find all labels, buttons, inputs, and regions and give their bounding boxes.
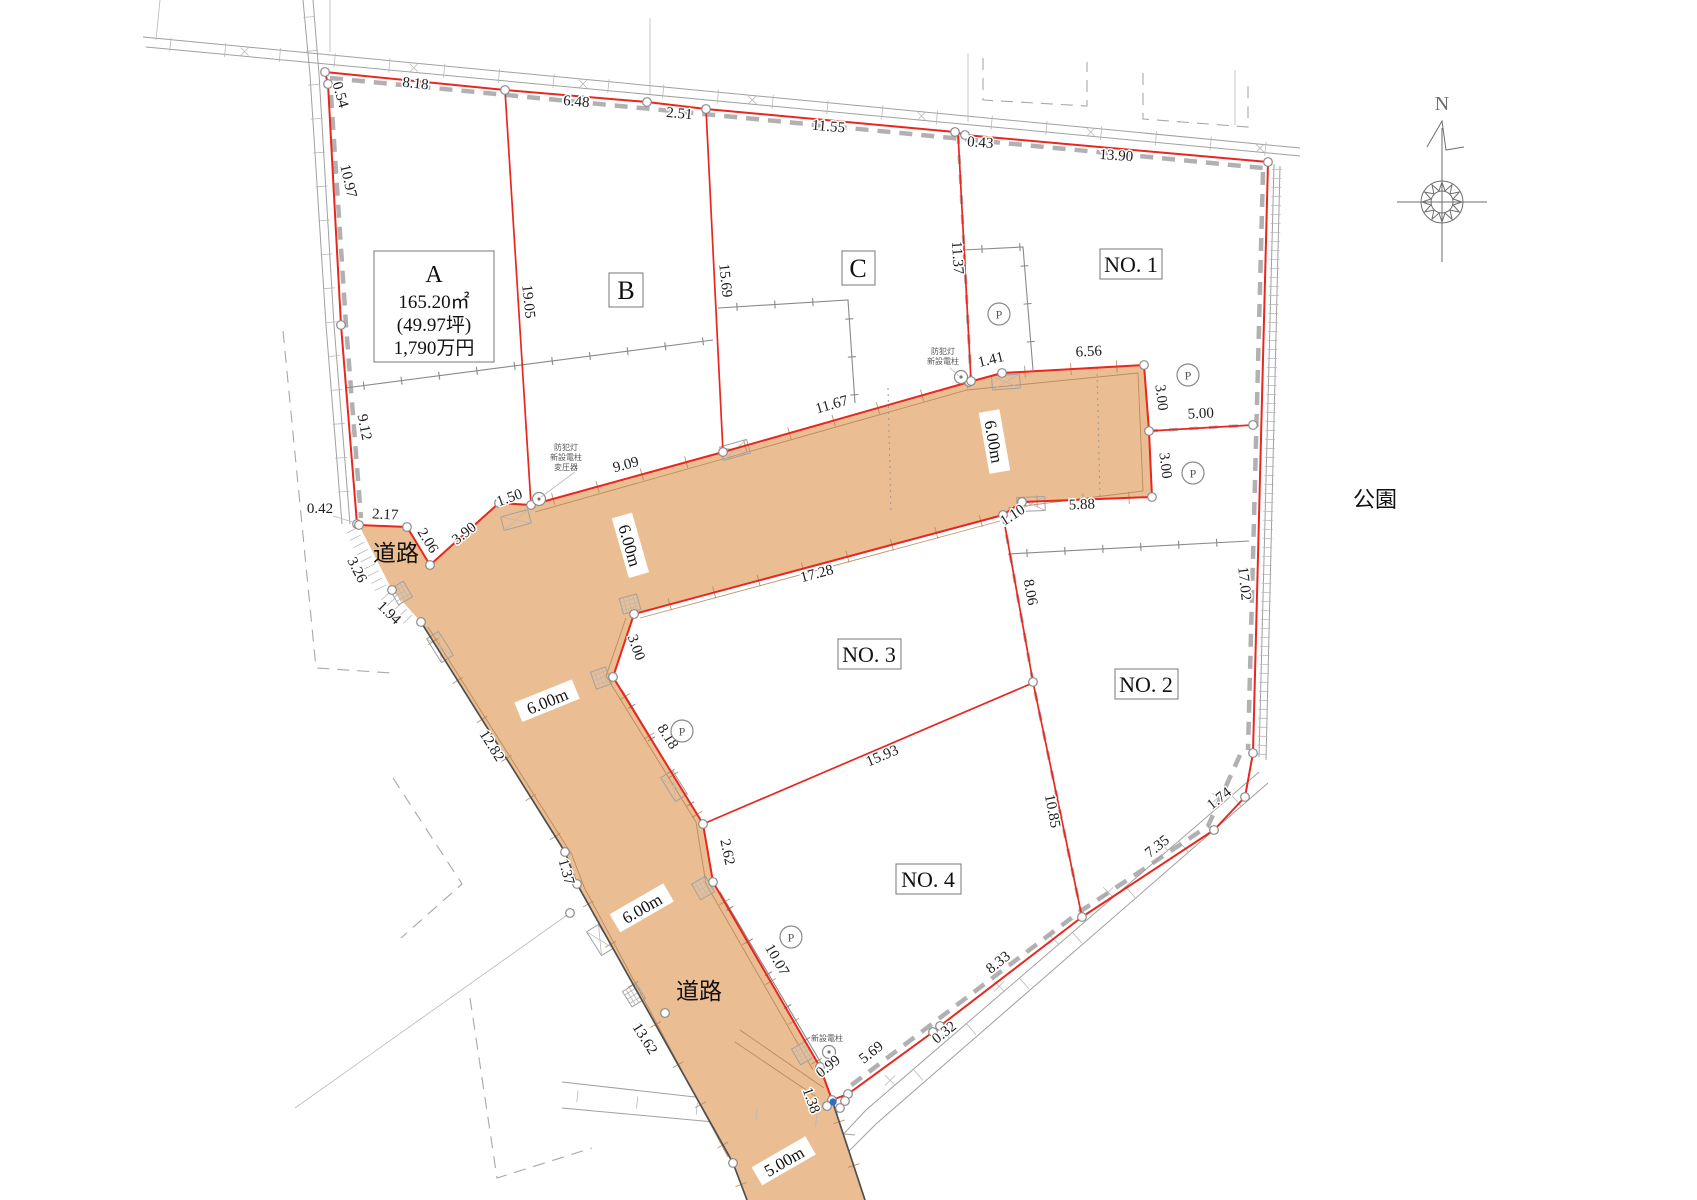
dimension-label: 2.17 [372,506,400,523]
survey-point [501,86,510,95]
fence-line [1008,541,1249,554]
north-road-edge [146,47,1300,156]
survey-point [1249,749,1258,758]
road-name-label: 道路 [676,979,722,1004]
dimension-label: 9.09 [611,454,640,476]
survey-point [1210,826,1219,835]
lot-a-info-box: A 165.20㎡ (49.97坪) 1,790万円 [374,251,494,362]
lot-line-no1-no2 [1149,425,1253,431]
dimension-label: 1.41 [976,349,1005,371]
sidewalk-hatch [350,535,361,540]
lot-no3-label: NO. 3 [838,639,901,669]
sidewalk-hatch [354,542,365,547]
survey-point [841,1097,850,1106]
drain-grate-icon [626,989,636,1004]
sidewalk-hatch [403,615,412,623]
north-arrow-icon [1427,121,1464,150]
park-label: 公園 [1353,487,1397,512]
se-road-tick [914,1070,923,1081]
sw-road-tick [577,1090,578,1102]
parking-mark-label: P [1185,369,1192,383]
survey-point [998,369,1007,378]
svg-text:NO. 1: NO. 1 [1104,252,1158,277]
dimension-label: 11.67 [814,393,851,418]
lot-a-area-m2: 165.20㎡ [398,290,469,313]
neighbor-building-outline [283,331,392,673]
neighbor-lot-line [295,913,570,1108]
dimension-label: 17.02 [1234,566,1253,601]
wall-dash [845,755,1240,1090]
dimension-label: 19.05 [518,284,537,319]
dimension-label: 10.97 [336,163,359,200]
survey-point [1145,427,1154,436]
road-band-tick [330,390,342,391]
se-road-tick [967,1024,976,1035]
road-band-tick [325,322,337,323]
dimension-label: 5.00 [1187,405,1214,422]
survey-point [951,128,960,137]
lot-a-label: A [425,262,443,288]
dimension-label: 8.06 [1020,578,1040,607]
survey-point [699,820,708,829]
survey-point [566,909,575,918]
dimension-label: 15.69 [715,263,734,298]
lot-a-price: 1,790万円 [394,338,475,359]
dimension-label: 6.56 [1075,343,1103,360]
dimension-label: 7.35 [1142,832,1173,861]
dimension-label: 3.00 [624,633,648,663]
sidewalk-hatch [375,585,386,590]
svg-text:B: B [617,276,634,305]
survey-point [609,673,618,682]
survey-point [709,878,718,887]
compass-rose: N [1397,93,1487,262]
neighbor-building-outline [983,58,1087,106]
survey-point [417,618,426,627]
new-road-area [359,365,1152,1200]
svg-text:C: C [849,254,866,283]
survey-point [729,1159,738,1168]
utility-note: 新設電柱 [927,356,959,366]
dimension-label: 1.74 [1204,784,1235,813]
parking-mark-label: P [996,308,1003,322]
survey-point [1140,361,1149,370]
lot-no1-label: NO. 1 [1100,249,1162,279]
sw-road-tick [636,1096,637,1108]
road-surface [359,365,1152,1200]
parking-mark-label: P [788,931,795,945]
survey-point [321,68,330,77]
utility-note: 新設電柱 [550,452,582,462]
neighbor-lot-line [156,0,160,40]
leader-line [333,516,356,523]
lot-a-area-tsubo: (49.97坪) [397,314,471,336]
dimension-label: 3.00 [1155,452,1174,480]
survey-point [403,523,412,532]
survey-point [1148,493,1157,502]
road-band-tick [328,356,340,357]
se-road-edge [800,783,1268,1200]
sidewalk-hatch [357,549,368,554]
survey-point [719,448,728,457]
dimension-label: 5.88 [1068,497,1095,514]
survey-point [561,848,570,857]
survey-point [1264,158,1273,167]
survey-point [643,98,652,107]
road-band-tick [1046,121,1047,135]
se-road-tick [1126,887,1135,898]
road-band-tick [936,111,937,125]
dimension-label: 8.18 [402,75,430,94]
neighbor-building-outline [393,778,462,938]
utility-pole-icon [959,375,962,378]
dimension-label: 5.69 [856,1038,887,1067]
dimension-label: 10.85 [1041,793,1063,829]
road-band-tick [323,288,335,289]
road-band-tick [333,423,345,424]
road-band-tick [1210,137,1211,151]
survey-point [1249,421,1258,430]
survey-point [702,105,711,114]
survey-point [1029,678,1038,687]
dimension-label: 9.12 [354,413,375,442]
dimension-label: 0.42 [307,501,333,517]
utility-note: 防犯灯 [931,346,955,356]
sidewalk-hatch [361,557,372,562]
utility-pole-icon [537,497,540,500]
road-band-tick [320,254,332,255]
survey-point [630,610,639,619]
lot-no4-label: NO. 4 [896,864,961,894]
dimension-label: 13.90 [1099,147,1134,165]
north-road-edge [143,37,1300,148]
dimension-label: 0.43 [967,134,994,152]
benchmark-dot [829,1098,836,1105]
neighbor-building-outline [1143,73,1248,127]
dimension-label: 11.37 [948,241,966,276]
utility-pole-icon [827,1050,830,1053]
road-band-tick [991,116,992,130]
survey-point [661,1009,670,1018]
parking-mark-label: P [679,725,686,739]
se-road-edge [782,772,1259,1200]
wall-dash [331,95,361,518]
road-name-label: 道路 [373,541,419,566]
dimension-label: 2.62 [716,838,737,867]
sw-road-tick [696,1103,697,1115]
dimension-label: 6.48 [563,93,591,111]
lot-b-label: B [609,273,643,307]
neighbor-building-outline [470,998,592,1178]
site-plan-drawing: N 公園 道路 道路 A 165.20㎡ (49.97坪) 1,790万円 B … [0,0,1697,1200]
dimension-label: 11.55 [811,118,845,137]
lot-c-label: C [842,251,875,285]
utility-note: 変圧器 [554,462,578,472]
survey-point [426,561,435,570]
sidewalk-hatch [346,528,357,533]
road-band-tick [308,84,320,85]
lot-no2-label: NO. 2 [1115,669,1178,699]
sidewalk-hatch [371,578,382,583]
dimension-label: 2.51 [666,105,694,123]
road-band-tick [1101,126,1102,140]
survey-point [355,521,364,530]
road-band-tick [1155,131,1156,145]
dimension-label: 1.94 [374,598,404,628]
road-band-tick [1265,142,1266,156]
sidewalk-hatch [368,571,379,576]
compass-north-label: N [1435,93,1449,115]
survey-point [388,586,397,595]
utility-note: 新設電柱 [811,1033,843,1043]
fence-line [718,300,855,403]
svg-text:NO. 4: NO. 4 [901,867,955,892]
survey-point [337,321,346,330]
utility-note: 防犯灯 [554,442,578,452]
survey-point [1078,913,1087,922]
svg-text:NO. 3: NO. 3 [842,642,896,667]
survey-point [1241,793,1250,802]
dimension-label: 0.32 [929,1018,960,1047]
dimension-label: 3.00 [1151,384,1170,412]
svg-text:NO. 2: NO. 2 [1119,672,1173,697]
plan-svg: N 公園 道路 道路 A 165.20㎡ (49.97坪) 1,790万円 B … [0,0,1697,1200]
se-road-tick [1073,933,1082,944]
east-road-edge [1266,166,1280,760]
parking-mark-label: P [1190,467,1197,481]
se-road-tick [1020,978,1029,989]
